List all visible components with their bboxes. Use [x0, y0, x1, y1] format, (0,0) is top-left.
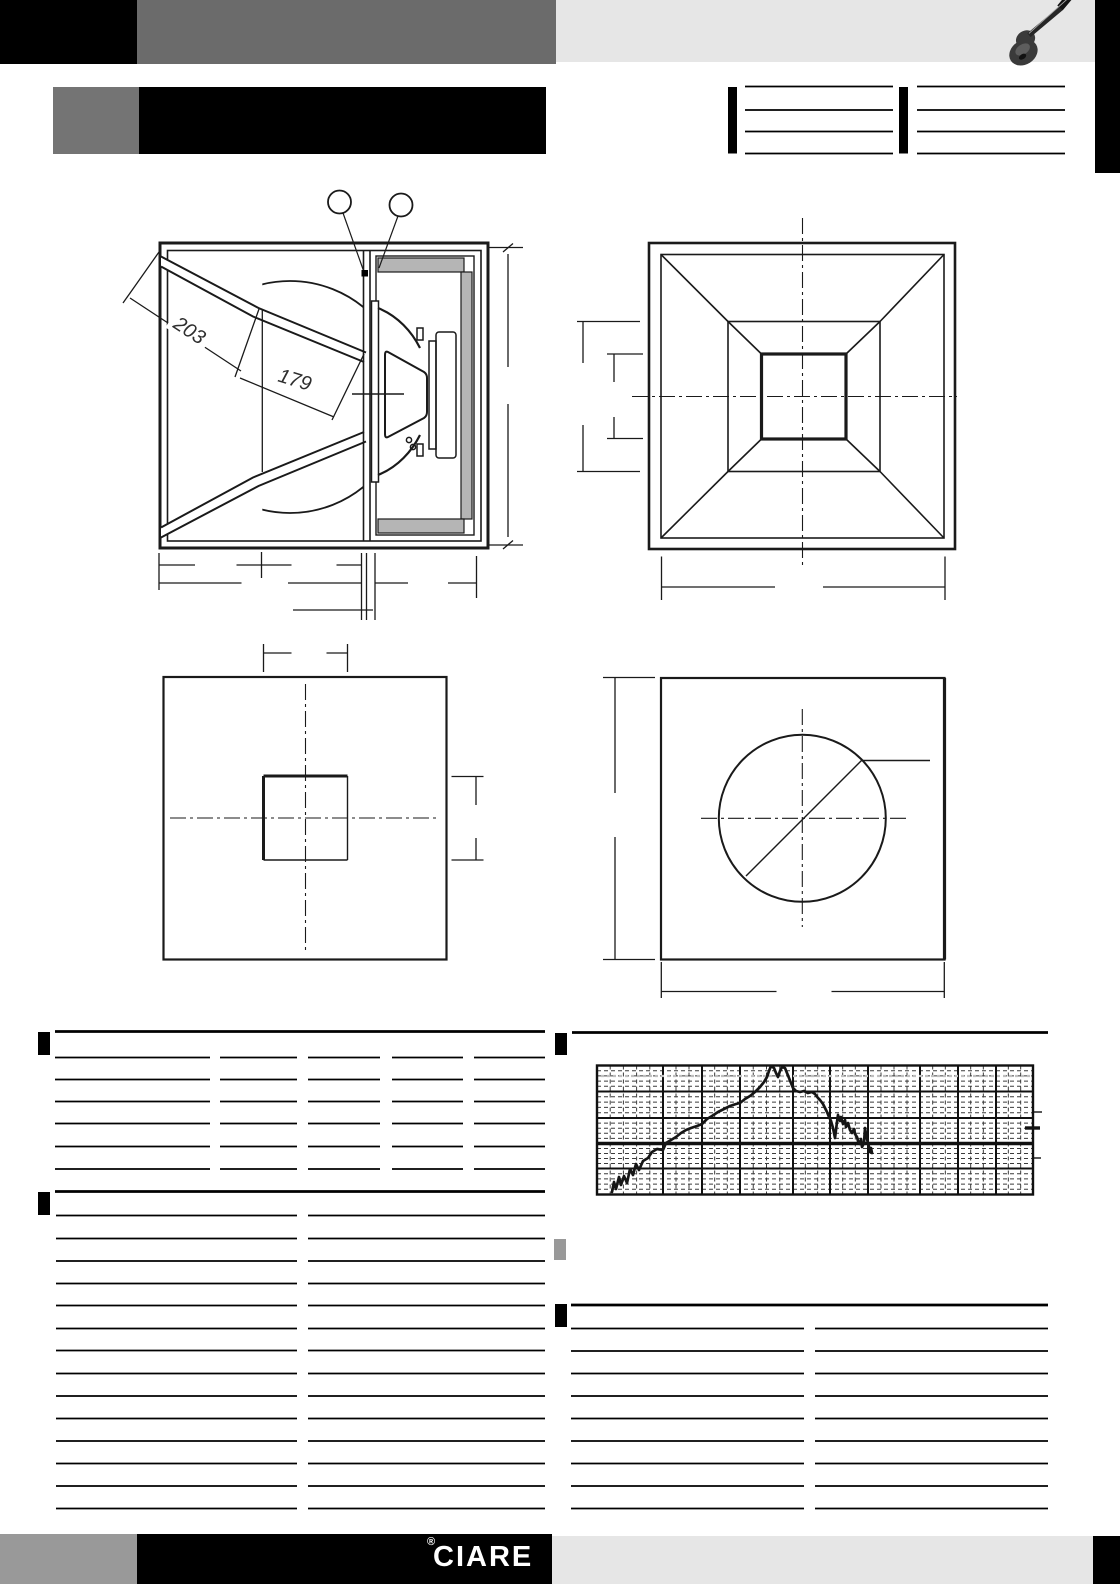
dim-label-179: 179 — [276, 365, 314, 396]
ciare-logo: ® CIARE — [424, 1534, 564, 1584]
footer-gray-block — [0, 1534, 137, 1584]
section-marker — [555, 1033, 567, 1055]
datasheet-page: 203 179 — [0, 0, 1120, 1584]
section-marker — [38, 1192, 50, 1215]
footer-light-band — [552, 1536, 1093, 1584]
speaker-driver — [352, 301, 456, 482]
section-marker-gray — [554, 1239, 566, 1260]
drawing-front-panel — [603, 678, 945, 999]
reference-table-left — [728, 87, 893, 154]
reference-table-right — [899, 87, 1065, 154]
drawing-cross-section: 203 179 — [123, 191, 523, 621]
drawing-rear-panel — [164, 644, 484, 960]
response-curve — [612, 1066, 872, 1192]
footer-right-strip — [1093, 1536, 1120, 1584]
drawing-front-horn-view — [577, 218, 957, 600]
frequency-response-chart — [597, 1066, 1042, 1195]
spec-tables — [55, 1058, 1048, 1509]
ciare-logo-text: CIARE — [433, 1543, 533, 1572]
technical-drawings: 203 179 — [0, 0, 1120, 1584]
section-marker — [38, 1032, 50, 1055]
section-marker — [555, 1304, 567, 1327]
